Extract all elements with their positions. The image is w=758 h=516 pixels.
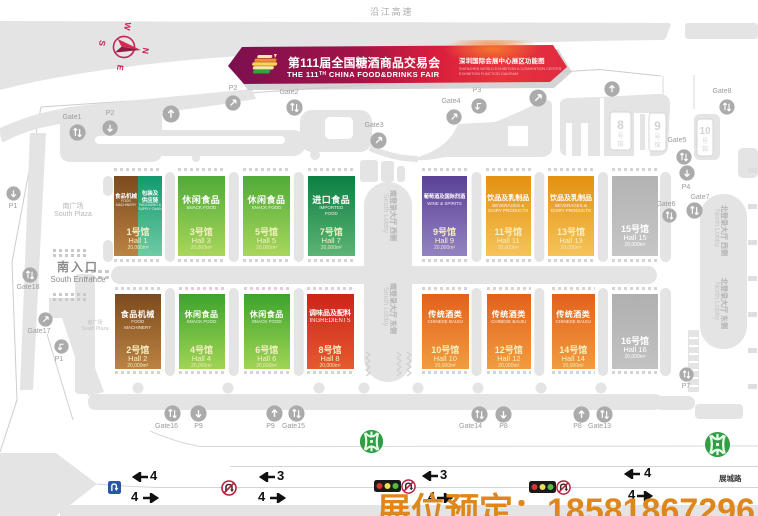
svg-text:N: N — [140, 47, 151, 55]
svg-text:号: 号 — [617, 133, 623, 140]
svg-text:号: 号 — [702, 138, 708, 145]
svg-text:W: W — [122, 21, 133, 32]
svg-text:9: 9 — [654, 119, 661, 133]
svg-text:8: 8 — [617, 118, 624, 132]
svg-text:S: S — [97, 40, 108, 48]
svg-text:E: E — [115, 64, 126, 72]
svg-text:馆: 馆 — [702, 145, 708, 153]
svg-text:馆: 馆 — [617, 140, 623, 148]
svg-text:10: 10 — [699, 126, 711, 137]
